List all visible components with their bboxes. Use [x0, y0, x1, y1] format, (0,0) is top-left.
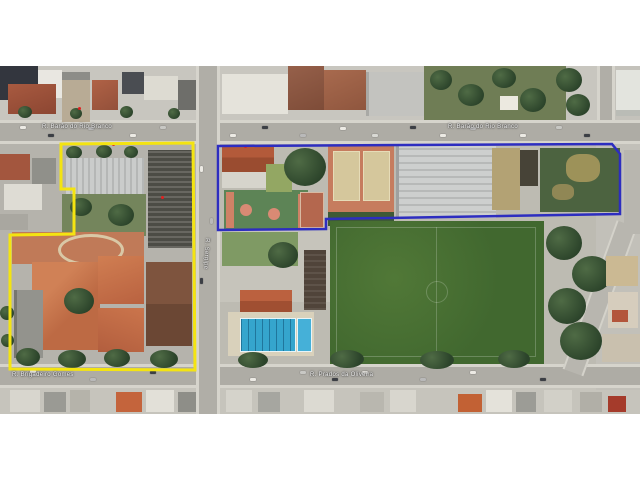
car	[250, 378, 256, 381]
street-label-north-east: R. Barão do Rio Branco	[448, 124, 518, 130]
tennis-court-surface	[363, 151, 390, 201]
bottom-white-margin	[0, 414, 640, 480]
tree	[58, 350, 86, 368]
building-roof	[606, 256, 638, 286]
car	[556, 126, 562, 129]
school-ribbed-roof	[66, 158, 144, 194]
building-roof	[8, 84, 56, 114]
school-dark-building	[148, 150, 192, 248]
dirt-patch	[492, 148, 520, 210]
tree	[498, 350, 530, 368]
building-roof	[116, 392, 142, 412]
building-roof	[226, 390, 252, 412]
orange-roof-building	[98, 256, 144, 304]
tree	[104, 349, 130, 367]
satellite-map[interactable]: R. Barão do Rio Branco R. Barão do Rio B…	[0, 66, 640, 414]
car	[160, 126, 166, 129]
soccer-field	[330, 221, 544, 364]
building-roof	[70, 390, 90, 412]
car	[200, 166, 203, 172]
tree	[16, 348, 40, 366]
street-east-edge	[624, 150, 640, 234]
tree	[70, 198, 92, 216]
screenshot-frame: R. Barão do Rio Branco R. Barão do Rio B…	[0, 0, 640, 480]
car	[48, 134, 54, 137]
court-key	[226, 192, 234, 228]
building-roof	[516, 392, 536, 412]
red-marker-dot	[244, 145, 247, 148]
tree	[150, 350, 178, 368]
car	[230, 134, 236, 137]
building-roof	[92, 80, 118, 110]
car	[210, 218, 213, 224]
tree	[560, 322, 602, 360]
street-label-south-center: R. Prados da Oliveira	[310, 372, 373, 378]
tree	[108, 204, 134, 226]
building-roof	[500, 96, 518, 110]
car	[440, 134, 446, 137]
building-roof	[178, 80, 196, 110]
tree	[18, 106, 32, 118]
building-roof	[602, 334, 640, 362]
tennis-court-surface	[333, 151, 360, 201]
car	[584, 134, 590, 137]
building-roof	[258, 392, 280, 412]
street-vertical-northeast	[597, 66, 615, 120]
field-center-circle	[426, 281, 448, 303]
orange-roof-building	[98, 308, 144, 352]
tree	[268, 242, 298, 268]
red-marker-dot	[78, 107, 81, 110]
tree	[96, 145, 112, 158]
car	[200, 278, 203, 284]
building-roof	[390, 390, 416, 412]
dry-grass-patch	[552, 184, 574, 200]
court-center-circle	[268, 208, 280, 220]
car	[262, 126, 268, 129]
tree	[120, 106, 133, 118]
brown-roof-building	[146, 262, 192, 346]
car	[332, 378, 338, 381]
car	[520, 134, 526, 137]
courtyard-tree	[64, 288, 94, 314]
white-patio	[222, 172, 268, 188]
building-roof	[0, 214, 28, 230]
red-marker-dot	[112, 143, 115, 146]
long-dark-roof	[304, 250, 326, 310]
building-roof	[4, 184, 42, 210]
building-roof	[0, 154, 30, 180]
building-roof	[612, 310, 628, 322]
building-roof	[324, 70, 366, 110]
car	[300, 371, 306, 374]
building-roof	[146, 390, 174, 412]
car	[300, 134, 306, 137]
building-roof	[458, 394, 482, 412]
tree	[1, 334, 14, 347]
car	[20, 126, 26, 129]
building-roof	[544, 390, 572, 412]
tree	[284, 148, 326, 186]
building-roof	[222, 74, 288, 114]
car	[470, 371, 476, 374]
car	[340, 127, 346, 130]
court-center-circle	[240, 204, 252, 216]
tree	[458, 84, 484, 106]
car	[410, 126, 416, 129]
car	[420, 378, 426, 381]
car	[90, 378, 96, 381]
building-roof	[366, 72, 427, 116]
tree	[238, 352, 268, 368]
building-roof	[44, 392, 66, 412]
tree	[0, 306, 14, 320]
tree	[492, 68, 516, 88]
red-marker-dot	[161, 196, 164, 199]
terracotta-roof-building	[240, 290, 292, 312]
building-roof	[486, 390, 512, 412]
tree	[546, 226, 582, 260]
tree	[124, 146, 138, 158]
tree	[520, 88, 546, 112]
building-roof	[288, 66, 324, 110]
building-roof	[616, 70, 640, 116]
building-roof	[10, 390, 40, 412]
building-roof	[608, 396, 626, 412]
gymnasium-roof	[396, 146, 496, 218]
tree	[548, 288, 586, 324]
small-pool	[297, 318, 312, 352]
car	[372, 134, 378, 137]
car	[130, 134, 136, 137]
building-roof	[304, 390, 334, 412]
swimming-pool	[240, 318, 296, 352]
building-roof	[32, 158, 56, 184]
tree	[566, 94, 590, 116]
tree	[556, 68, 582, 92]
tree	[168, 108, 180, 119]
building-roof	[360, 392, 384, 412]
car	[150, 371, 156, 374]
top-white-margin	[0, 0, 640, 66]
street-label-south-west: R. Brigadeiro Gomes	[12, 372, 74, 378]
tree	[420, 351, 454, 369]
dry-grass-patch	[566, 154, 600, 182]
building-roof	[144, 76, 178, 100]
building-roof	[122, 72, 144, 94]
tree	[330, 350, 364, 368]
building-roof	[580, 392, 602, 412]
building-roof	[178, 392, 196, 412]
car	[540, 378, 546, 381]
tree	[430, 70, 452, 90]
sports-courts	[224, 190, 308, 230]
mini-red-court	[300, 192, 324, 228]
street-label-north-west: R. Barão do Rio Branco	[42, 124, 112, 130]
shed-roof	[520, 150, 538, 186]
